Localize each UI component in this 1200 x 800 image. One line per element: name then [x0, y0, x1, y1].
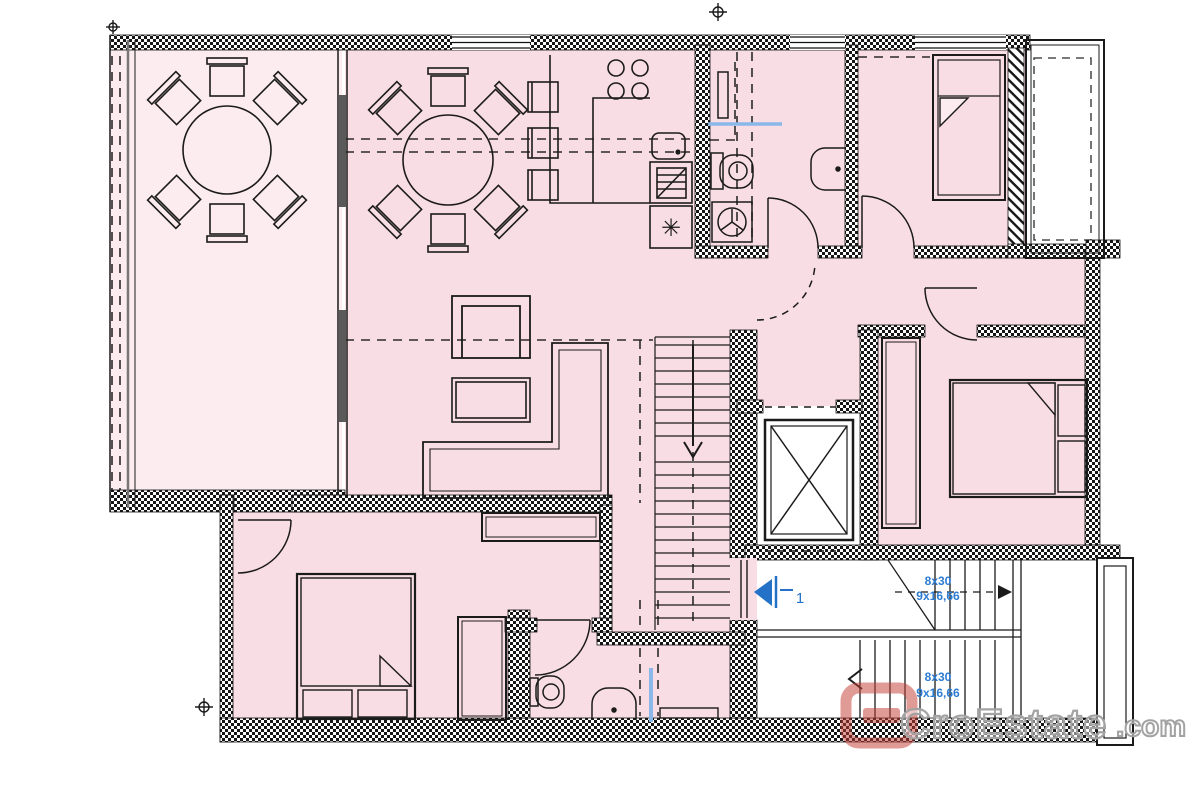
- watermark-brand-text: CroEstate: [900, 700, 1107, 747]
- apartment-floor: [345, 50, 1085, 560]
- wall-stair-core: [730, 330, 757, 558]
- crosshair-marker: [195, 698, 213, 716]
- sliding-door-panel: [339, 95, 346, 207]
- lower-flight-label-2: 9x16,66: [916, 686, 960, 700]
- sliding-door-panel: [339, 310, 346, 422]
- wall-stairwell-top: [745, 545, 1120, 560]
- wall-left: [220, 495, 233, 742]
- wall-bath: [845, 45, 858, 258]
- upper-flight-label-1: 8x30: [925, 574, 952, 588]
- wall: [505, 618, 537, 632]
- wall-hall: [695, 246, 768, 258]
- crosshair-marker: [106, 20, 120, 34]
- window: [452, 35, 530, 50]
- wall-hall: [914, 246, 1008, 258]
- balcony-floor: [1026, 42, 1104, 256]
- window: [915, 35, 1006, 50]
- wall-diagonal-hatch: [1008, 48, 1024, 252]
- terrace-floor: [110, 40, 342, 495]
- wall-bedroom-top: [977, 325, 1085, 337]
- wall-elevator-stub: [737, 400, 763, 413]
- lower-flight-label-1: 8x30: [925, 670, 952, 684]
- wall-top: [110, 35, 1030, 50]
- wall-elevator: [860, 330, 878, 560]
- wall-hall: [818, 246, 862, 258]
- crosshair-marker: [709, 3, 727, 21]
- freezer-symbol: ✳: [661, 215, 681, 242]
- entrance-number: 1: [796, 590, 804, 607]
- wall-corridor: [600, 505, 612, 632]
- floor-plan-canvas: ✳: [0, 0, 1200, 800]
- wall-elevator-stub: [836, 400, 862, 413]
- wall: [592, 618, 612, 632]
- entrance-door-opening: [730, 558, 757, 620]
- floor-plan-drawing: ✳: [0, 0, 1200, 800]
- upper-flight-label-2: 9x16,66: [916, 589, 960, 603]
- watermark-tld-text: .com: [1116, 710, 1186, 743]
- wall: [597, 632, 745, 645]
- window: [790, 35, 845, 50]
- wall-kitchen: [695, 45, 710, 258]
